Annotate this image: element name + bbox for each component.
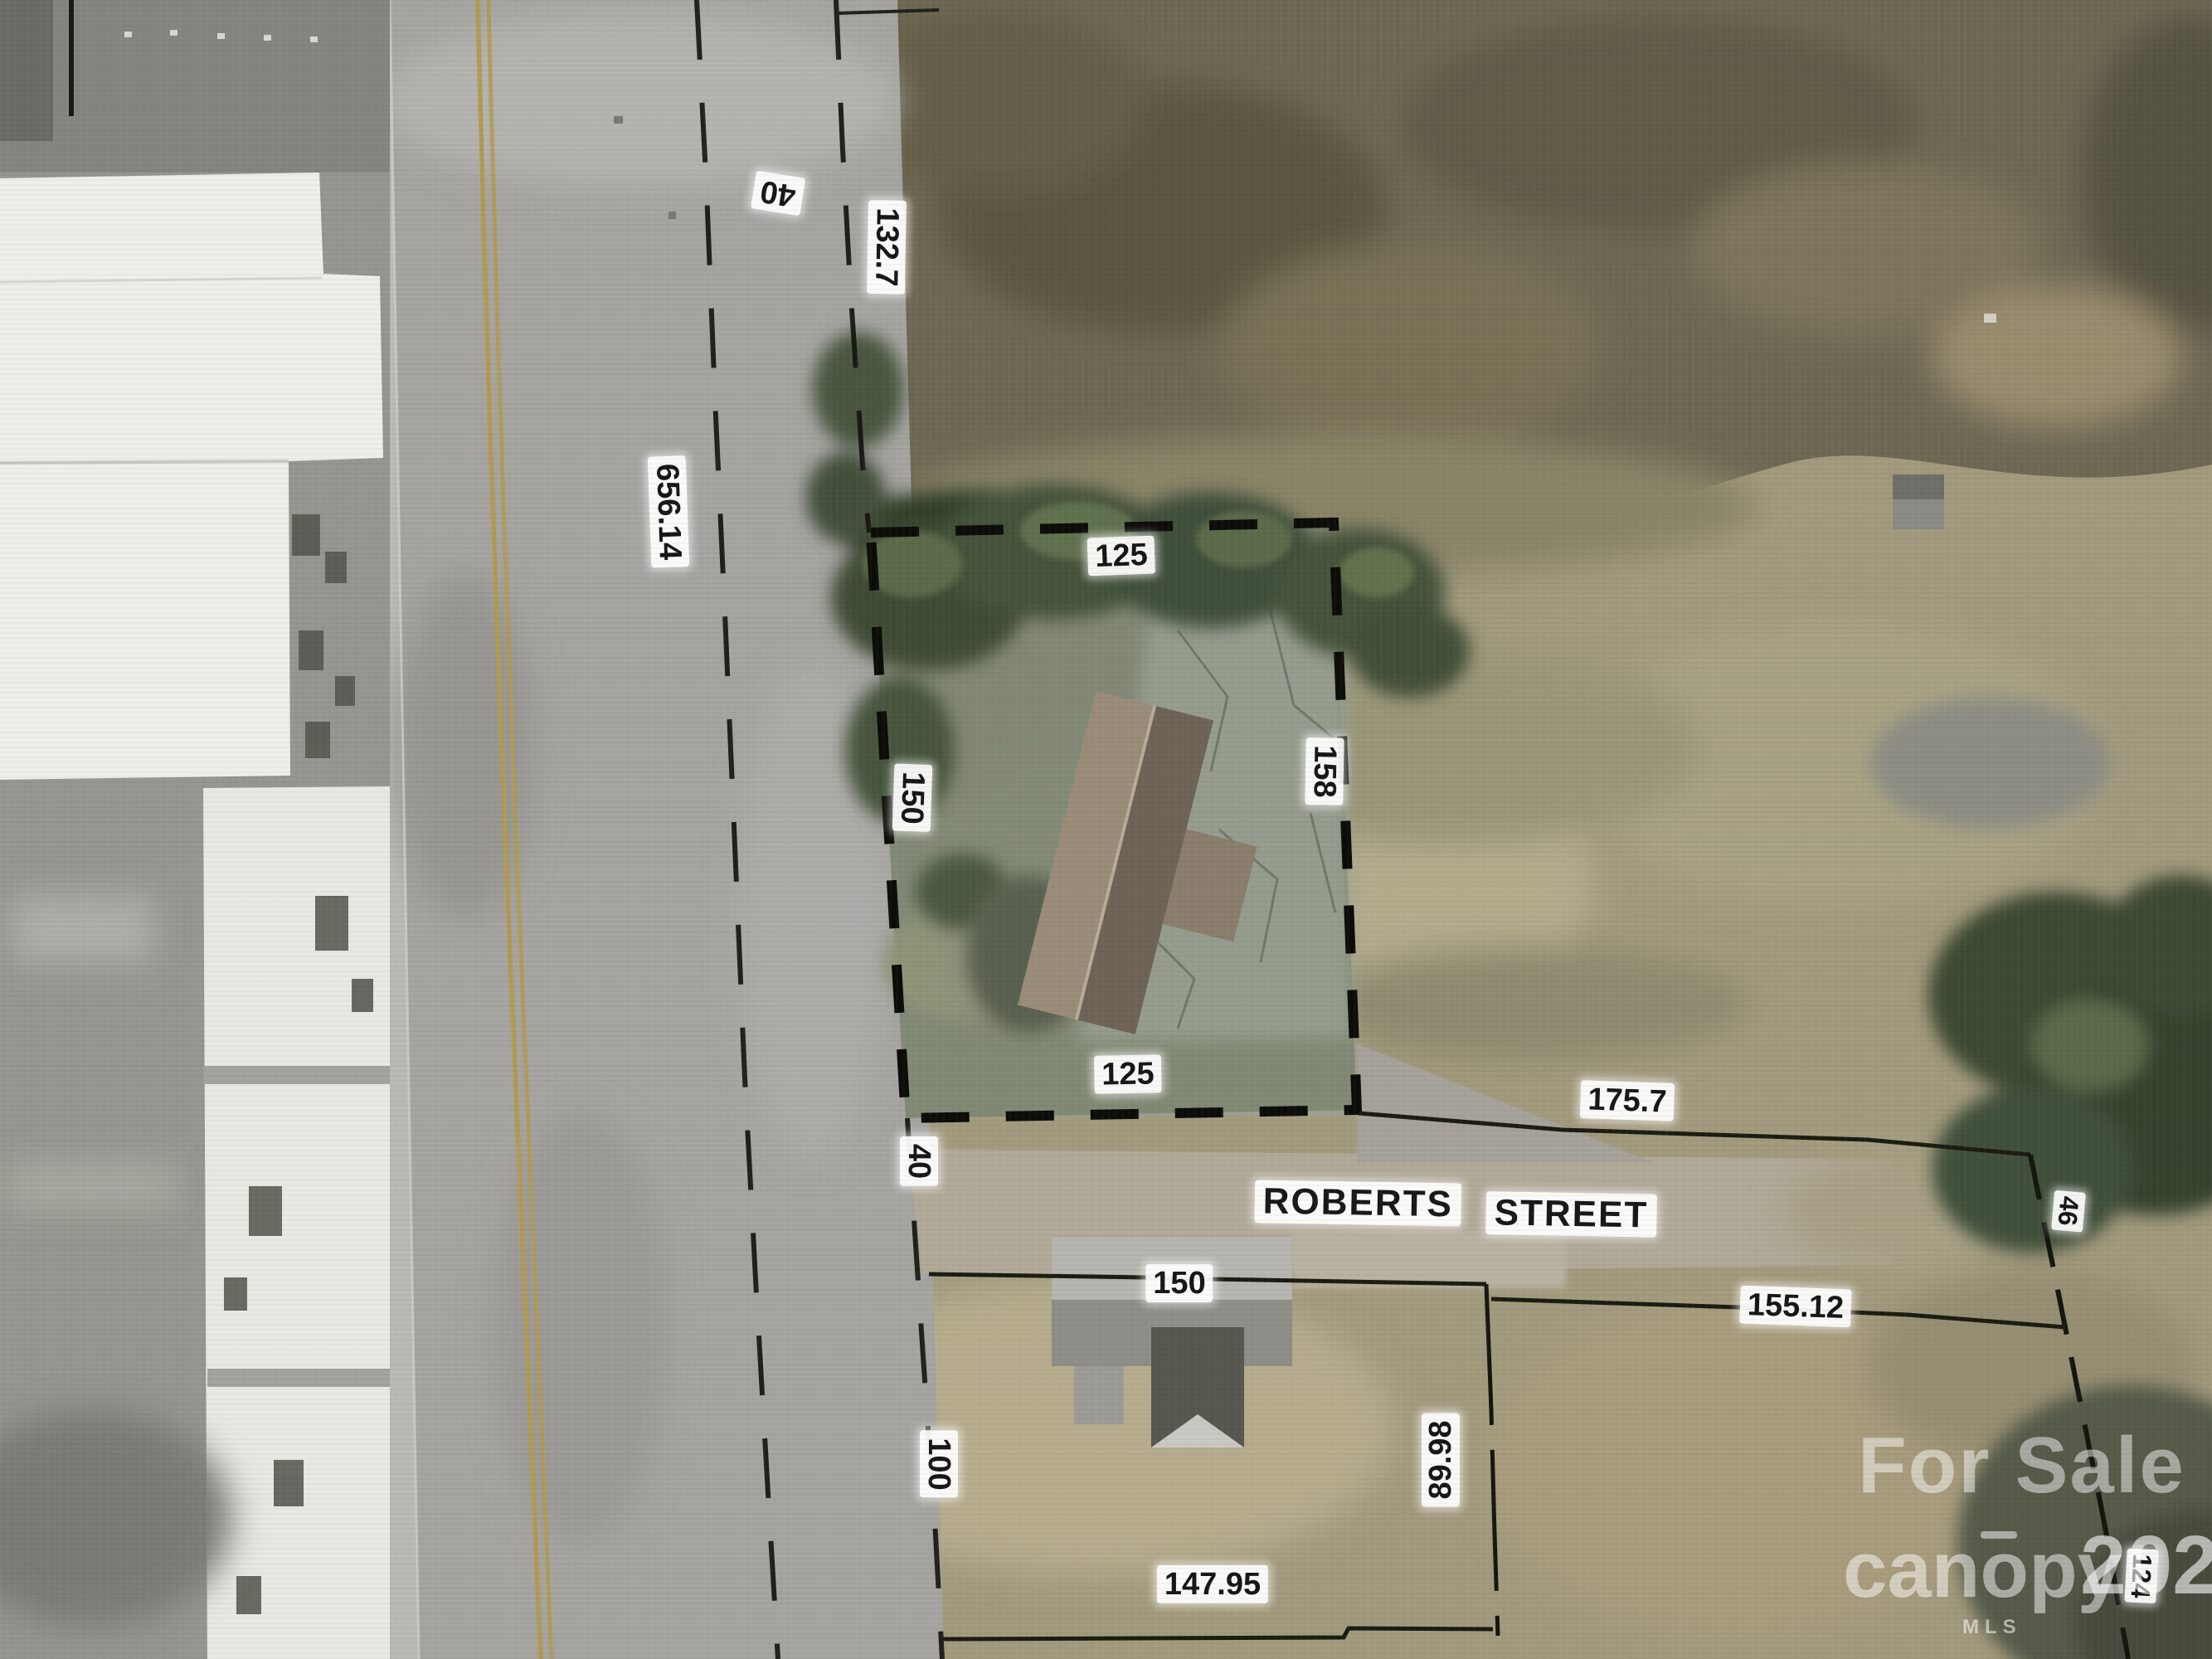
main-road xyxy=(347,0,944,1659)
dimension-label-parcel-west: 150 xyxy=(892,764,933,833)
dimension-label-lot-150: 150 xyxy=(1145,1264,1213,1302)
street-name-word1: ROBERTS xyxy=(1254,1180,1461,1226)
dimension-label-lot-100: 100 xyxy=(920,1430,958,1497)
dimension-text: 89.98 xyxy=(1423,1420,1458,1499)
dimension-text: 40 xyxy=(758,173,798,213)
dimension-label-road-width-bottom: 40 xyxy=(900,1136,938,1186)
canopy-logo-macron xyxy=(1981,1531,2017,1539)
parking-lot-top xyxy=(0,0,390,173)
dimension-text: 100 xyxy=(921,1438,956,1490)
dimension-label-parcel-north: 125 xyxy=(1087,536,1156,577)
dimension-label-parcel-east: 158 xyxy=(1305,737,1344,805)
dimension-text: 147.95 xyxy=(1164,1567,1261,1602)
dimension-label-lot-175: 175.7 xyxy=(1580,1080,1675,1121)
dimension-text: 150 xyxy=(894,771,931,825)
dirt-patch xyxy=(1870,697,2111,829)
dimension-label-lot-46: 46 xyxy=(2051,1190,2086,1233)
aerial-imagery xyxy=(0,0,2212,1659)
shed xyxy=(1893,474,1944,529)
commercial-building xyxy=(0,0,390,1659)
street-name-label: ROBERTS STREET xyxy=(1254,1180,1657,1237)
dimension-label-road-frontage-east: 132.7 xyxy=(867,200,907,294)
dimension-text: 175.7 xyxy=(1587,1082,1668,1119)
dimension-text: 125 xyxy=(1095,538,1149,574)
dimension-text: 656.14 xyxy=(649,463,688,561)
dimension-text: 46 xyxy=(2053,1195,2085,1228)
dimension-label-lot-89: 89.98 xyxy=(1422,1413,1460,1506)
dimension-label-road-length-west: 656.14 xyxy=(648,455,690,568)
dimension-text: 150 xyxy=(1153,1266,1205,1301)
street-name-word2: STREET xyxy=(1485,1191,1656,1238)
dimension-text: 124 xyxy=(2126,1553,2158,1598)
aerial-parcel-map: 40 132.7 656.14 125 150 158 125 40 175.7… xyxy=(0,0,2212,1659)
dimension-text: 155.12 xyxy=(1747,1287,1845,1326)
dimension-text: 132.7 xyxy=(868,207,905,287)
dimension-label-lot-155: 155.12 xyxy=(1739,1286,1852,1328)
dimension-text: 125 xyxy=(1101,1056,1155,1092)
dimension-label-lot-124: 124 xyxy=(2124,1548,2158,1603)
dimension-label-lot-147: 147.95 xyxy=(1157,1565,1268,1603)
dimension-label-parcel-south: 125 xyxy=(1094,1054,1162,1093)
dimension-label-road-width-top: 40 xyxy=(751,171,806,216)
dimension-text: 158 xyxy=(1306,745,1342,798)
dimension-text: 40 xyxy=(902,1144,936,1179)
